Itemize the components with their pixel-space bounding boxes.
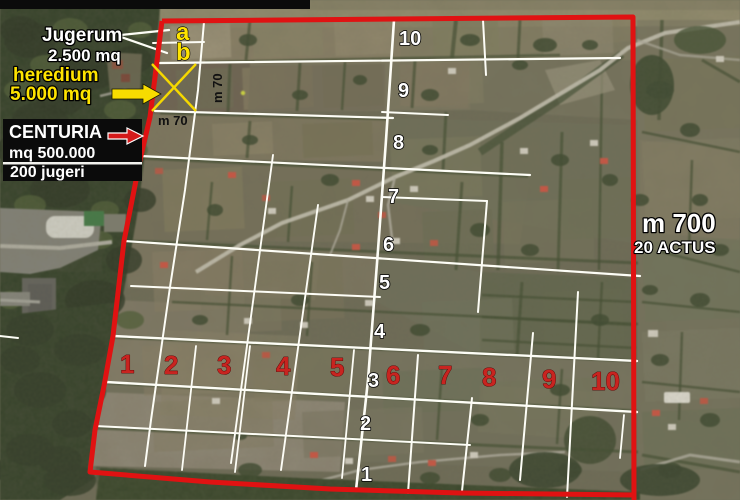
svg-text:7: 7: [388, 186, 399, 208]
svg-text:3: 3: [368, 370, 379, 392]
svg-text:2: 2: [164, 350, 178, 380]
svg-text:Jugerum: Jugerum: [42, 25, 122, 46]
svg-text:10: 10: [591, 366, 620, 396]
svg-text:m 70: m 70: [158, 113, 188, 128]
svg-text:9: 9: [542, 364, 556, 394]
svg-text:CENTURIA: CENTURIA: [9, 122, 102, 142]
svg-text:9: 9: [398, 80, 409, 102]
svg-text:5: 5: [379, 272, 390, 294]
svg-text:m 70: m 70: [210, 73, 225, 103]
svg-text:6: 6: [383, 234, 394, 256]
svg-text:8: 8: [393, 132, 404, 154]
svg-text:2: 2: [360, 413, 371, 435]
svg-text:mq 500.000: mq 500.000: [9, 145, 95, 162]
svg-text:heredium: heredium: [13, 65, 99, 86]
svg-text:7: 7: [438, 360, 452, 390]
svg-text:5: 5: [330, 352, 344, 382]
svg-text:20 ACTUS: 20 ACTUS: [634, 238, 716, 257]
svg-text:4: 4: [276, 351, 291, 381]
svg-text:m 700: m 700: [642, 208, 716, 238]
svg-text:b: b: [176, 39, 191, 66]
svg-text:3: 3: [217, 350, 231, 380]
svg-text:1: 1: [361, 464, 372, 486]
svg-text:1: 1: [120, 349, 134, 379]
svg-text:10: 10: [399, 28, 421, 50]
svg-text:2.500 mq: 2.500 mq: [48, 46, 121, 65]
svg-text:200 jugeri: 200 jugeri: [10, 164, 85, 181]
svg-text:8: 8: [482, 362, 496, 392]
svg-text:5.000 mq: 5.000 mq: [10, 84, 91, 105]
svg-text:4: 4: [374, 321, 386, 343]
svg-text:6: 6: [386, 360, 400, 390]
